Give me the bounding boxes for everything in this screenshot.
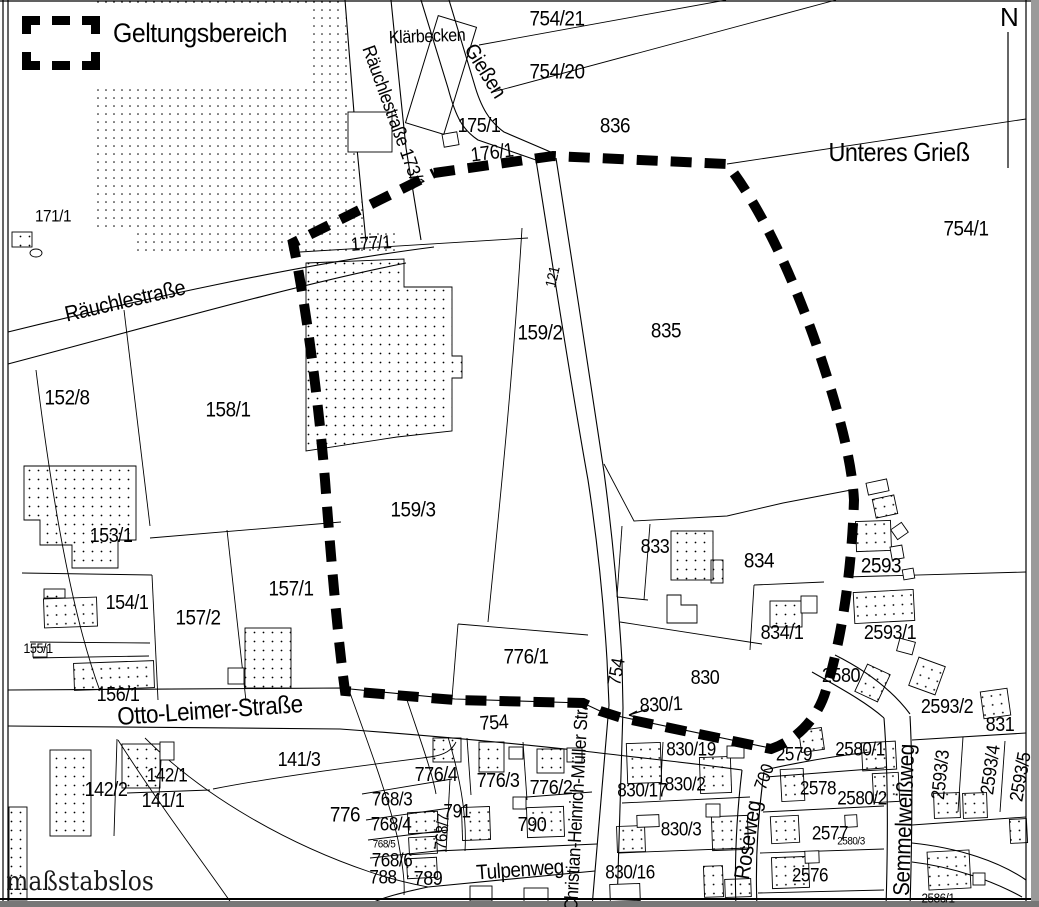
parcel-label-153-1: 153/1 — [90, 526, 133, 546]
parcel-label-171-1: 171/1 — [35, 208, 71, 225]
building-footprint — [1009, 819, 1027, 844]
building-footprint — [513, 797, 526, 809]
parcel-label-159-2: 159/2 — [517, 323, 562, 344]
parcel-label-175-1: 175/1 — [458, 116, 501, 136]
parcel-label-155-1: 155/1 — [23, 641, 52, 655]
parcel-boundary-line — [760, 849, 884, 853]
parcel-label-2593: 2593 — [861, 556, 901, 577]
parcel-label-834: 834 — [744, 551, 774, 572]
parcel-boundary-line — [604, 464, 851, 521]
parcel-label-2579: 2579 — [776, 746, 812, 765]
parcel-label-141-1: 141/1 — [142, 791, 185, 811]
parcel-label-152-8: 152/8 — [44, 388, 89, 409]
building-footprint — [433, 738, 461, 762]
parcel-label-142-2: 142/2 — [85, 780, 128, 800]
building-footprint — [228, 668, 244, 684]
building-footprint — [866, 479, 889, 495]
building-footprint — [160, 742, 174, 760]
parcel-label-142-1: 142/1 — [147, 767, 188, 786]
parcel-label-2593-2: 2593/2 — [921, 697, 973, 717]
parcel-label-2580-2: 2580/2 — [837, 790, 887, 809]
building-footprint — [306, 259, 462, 451]
parcel-label-2578: 2578 — [800, 780, 836, 799]
parcel-label-836: 836 — [600, 116, 630, 137]
legend-panel: Geltungsbereich — [10, 4, 310, 88]
geltungsbereich-boundary-symbol — [22, 16, 100, 70]
building-footprint — [801, 596, 817, 613]
parcel-boundary-line — [617, 526, 622, 597]
parcel-boundary-line — [458, 624, 588, 635]
parcel-label-789: 789 — [414, 869, 443, 889]
street-label-semmelwei-weg: Semmelweißweg — [890, 744, 918, 896]
building-footprint — [805, 851, 819, 863]
building-footprint — [902, 568, 915, 580]
parcel-boundary-line — [758, 890, 884, 893]
parcel-boundary-line — [620, 622, 762, 644]
parcel-label-830-2: 830/2 — [665, 776, 706, 795]
building-footprint — [44, 597, 98, 628]
building-footprint — [963, 793, 988, 819]
building-footprint — [973, 873, 985, 885]
road-edge-line — [556, 158, 623, 708]
parcel-boundary-line — [150, 522, 341, 538]
building-footprint — [671, 531, 713, 580]
parcel-label-776: 776 — [330, 805, 360, 826]
parcel-label-768-4: 768/4 — [371, 816, 412, 835]
parcel-boundary-line — [452, 624, 458, 698]
parcel-label-776-1: 776/1 — [503, 647, 548, 668]
parcel-label-121: 121 — [543, 265, 562, 289]
parcel-boundary-line — [488, 228, 522, 622]
building-footprint — [770, 815, 799, 843]
parcel-label-2580-1: 2580/1 — [835, 741, 885, 760]
parcel-label-830-16: 830/16 — [605, 864, 655, 883]
building-footprint — [711, 560, 723, 583]
parcel-label-831: 831 — [986, 715, 1015, 735]
parcel-label-2593-1: 2593/1 — [864, 623, 916, 643]
parcel-label-754: 754 — [605, 657, 628, 687]
building-footprint — [44, 589, 65, 598]
building-footprint — [245, 628, 291, 688]
legend-label: Geltungsbereich — [113, 18, 287, 49]
parcel-label-2586-1: 2586/1 — [921, 892, 954, 905]
parcel-boundary-line — [617, 597, 648, 600]
parcel-label-754: 754 — [479, 712, 509, 734]
building-footprint — [853, 589, 915, 623]
parcel-label-2576: 2576 — [792, 867, 828, 886]
parcel-boundary-line — [754, 582, 824, 585]
parcel-label-177-1: 177/1 — [350, 233, 392, 255]
building-footprint — [725, 879, 752, 898]
building-footprint — [855, 520, 891, 551]
building-footprint — [927, 850, 971, 890]
place-label-unteres-grie: Unteres Grieß — [828, 139, 969, 165]
building-footprint — [24, 466, 136, 568]
building-footprint — [891, 522, 909, 539]
parcel-label-754-21: 754/21 — [529, 9, 584, 30]
parcel-label-830-3: 830/3 — [661, 821, 702, 840]
building-footprint — [617, 826, 646, 853]
parcel-label-158-1: 158/1 — [205, 400, 250, 421]
building-footprint — [12, 232, 32, 247]
building-footprint — [667, 595, 697, 623]
parcel-label-154-1: 154/1 — [106, 593, 149, 613]
parcel-label-790: 790 — [518, 815, 547, 835]
parcel-boundary-line — [750, 585, 754, 650]
building-footprint — [626, 742, 661, 783]
building-footprint — [872, 495, 897, 518]
parcel-label-830-1: 830/1 — [639, 694, 683, 716]
parcel-label-833: 833 — [641, 537, 670, 557]
building-footprint — [703, 866, 723, 898]
building-footprint — [637, 815, 659, 828]
parcel-label-791: 791 — [443, 803, 470, 822]
building-footprint — [442, 132, 459, 147]
parcel-label-776-4: 776/4 — [415, 765, 458, 785]
parcel-label-2593-3: 2593/3 — [929, 749, 953, 800]
window-edge — [0, 901, 1039, 907]
parcel-label-159-3: 159/3 — [390, 500, 435, 521]
parcel-label-776-2: 776/2 — [530, 778, 573, 798]
building-footprint — [909, 657, 946, 695]
building-footprint — [537, 749, 564, 773]
cadastral-map-view: Geltungsbereich N 754/21754/20836754/117… — [0, 0, 1039, 907]
parcel-label-176-1: 176/1 — [470, 140, 515, 165]
parcel-label-141-3: 141/3 — [278, 750, 321, 770]
parcel-label-830: 830 — [691, 668, 720, 688]
parcel-label-768-3: 768/3 — [372, 791, 413, 810]
parcel-label-776-3: 776/3 — [477, 771, 520, 791]
north-arrow-label: N — [1000, 2, 1019, 33]
parcel-boundary-line — [479, 0, 726, 45]
parcel-label-830-17: 830/17 — [617, 782, 667, 801]
parcel-label-834-1: 834/1 — [761, 623, 804, 643]
building-footprint — [479, 742, 504, 772]
parcel-boundary-line — [467, 738, 471, 795]
parcel-boundary-line — [523, 742, 527, 800]
parcel-label-830-19: 830/19 — [666, 741, 716, 760]
building-footprint — [509, 747, 523, 759]
parcel-label-754-1: 754/1 — [943, 219, 988, 240]
parcel-boundary-line — [33, 656, 149, 658]
building-footprint — [524, 888, 548, 903]
parcel-label-835: 835 — [651, 321, 681, 342]
building-footprint — [706, 804, 720, 817]
parcel-label-2580-3: 2580/3 — [837, 837, 865, 848]
parcel-label-2580: 2580 — [822, 666, 860, 686]
parcel-label-754-20: 754/20 — [529, 62, 584, 83]
parcel-label-768-5: 768/5 — [373, 840, 396, 851]
parcel-label-157-2: 157/2 — [175, 608, 220, 629]
small-structure — [30, 249, 42, 257]
place-label-ma-stabslos: maßstabslos — [6, 869, 154, 895]
place-label-kl-rbecken: Klärbecken — [388, 26, 465, 47]
parcel-boundary-line — [22, 573, 152, 575]
parcel-label-157-1: 157/1 — [268, 579, 313, 600]
parcel-label-788: 788 — [369, 869, 396, 888]
